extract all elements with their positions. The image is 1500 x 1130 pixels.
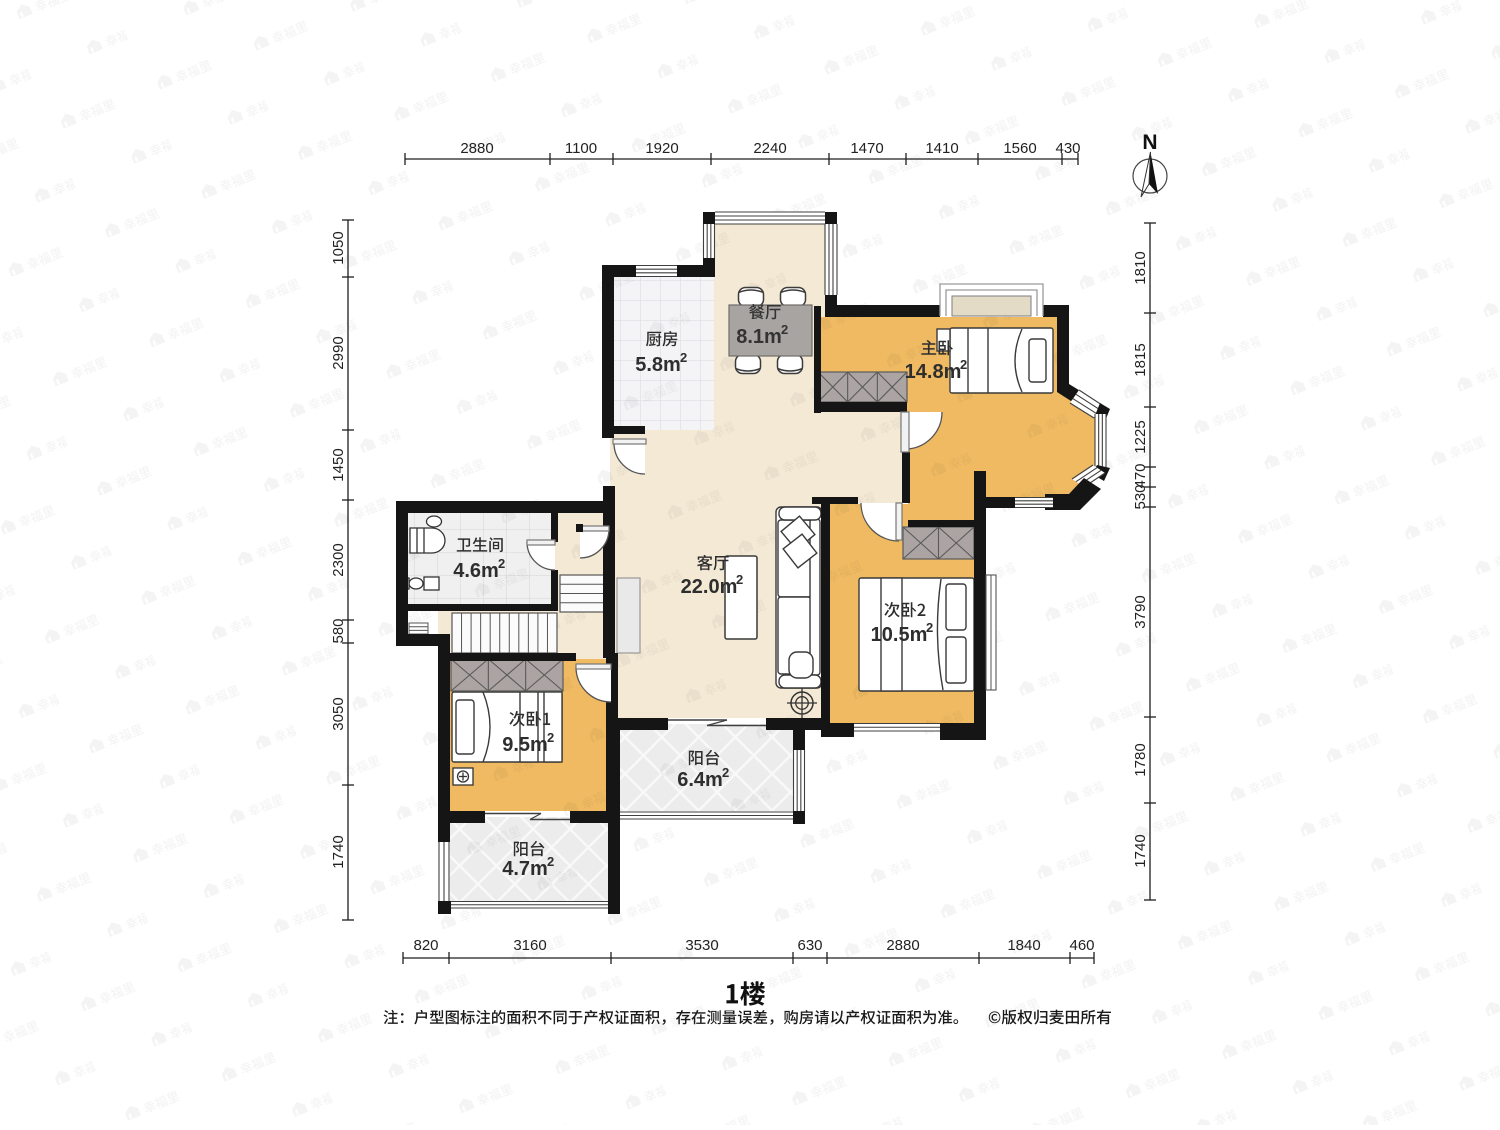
svg-text:1780: 1780 (1132, 743, 1149, 776)
svg-text:3790: 3790 (1132, 595, 1149, 628)
svg-text:460: 460 (1069, 937, 1094, 954)
svg-text:2: 2 (547, 730, 554, 745)
svg-text:3160: 3160 (513, 937, 546, 954)
svg-text:10.5m: 10.5m (871, 624, 928, 646)
svg-text:8.1m: 8.1m (736, 326, 782, 348)
svg-text:4.6m: 4.6m (453, 560, 499, 582)
svg-text:4.7m: 4.7m (502, 858, 548, 880)
svg-text:6.4m: 6.4m (677, 769, 723, 791)
svg-text:2: 2 (547, 854, 554, 869)
svg-text:1840: 1840 (1007, 937, 1040, 954)
svg-text:630: 630 (797, 937, 822, 954)
svg-text:2: 2 (781, 322, 788, 337)
svg-text:2300: 2300 (330, 543, 347, 576)
svg-text:2: 2 (680, 350, 687, 365)
svg-text:1050: 1050 (330, 231, 347, 264)
svg-text:1470: 1470 (850, 140, 883, 157)
svg-text:2: 2 (960, 357, 967, 372)
svg-text:3530: 3530 (685, 937, 718, 954)
svg-text:2: 2 (722, 765, 729, 780)
svg-text:2: 2 (926, 620, 933, 635)
svg-text:1225: 1225 (1132, 420, 1149, 453)
svg-text:1410: 1410 (925, 140, 958, 157)
svg-text:5.8m: 5.8m (635, 354, 681, 376)
svg-text:2880: 2880 (886, 937, 919, 954)
svg-text:580: 580 (330, 618, 347, 643)
svg-text:1740: 1740 (330, 835, 347, 868)
svg-text:N: N (1142, 131, 1157, 154)
svg-text:820: 820 (413, 937, 438, 954)
svg-text:1100: 1100 (565, 140, 597, 157)
svg-text:22.0m: 22.0m (681, 576, 738, 598)
svg-text:2240: 2240 (753, 140, 786, 157)
svg-text:9.5m: 9.5m (502, 734, 548, 756)
svg-text:2: 2 (736, 572, 743, 587)
svg-text:2880: 2880 (460, 140, 493, 157)
svg-text:3050: 3050 (330, 697, 347, 730)
svg-text:430: 430 (1055, 140, 1080, 157)
svg-text:2: 2 (498, 556, 505, 571)
svg-text:14.8m: 14.8m (905, 361, 962, 383)
svg-text:1450: 1450 (330, 448, 347, 481)
svg-text:1815: 1815 (1132, 343, 1149, 376)
svg-text:2990: 2990 (330, 336, 347, 369)
svg-text:1810: 1810 (1132, 251, 1149, 284)
svg-text:1740: 1740 (1132, 834, 1149, 867)
svg-text:1920: 1920 (645, 140, 678, 157)
svg-text:1560: 1560 (1003, 140, 1036, 157)
svg-text:530: 530 (1132, 484, 1149, 509)
